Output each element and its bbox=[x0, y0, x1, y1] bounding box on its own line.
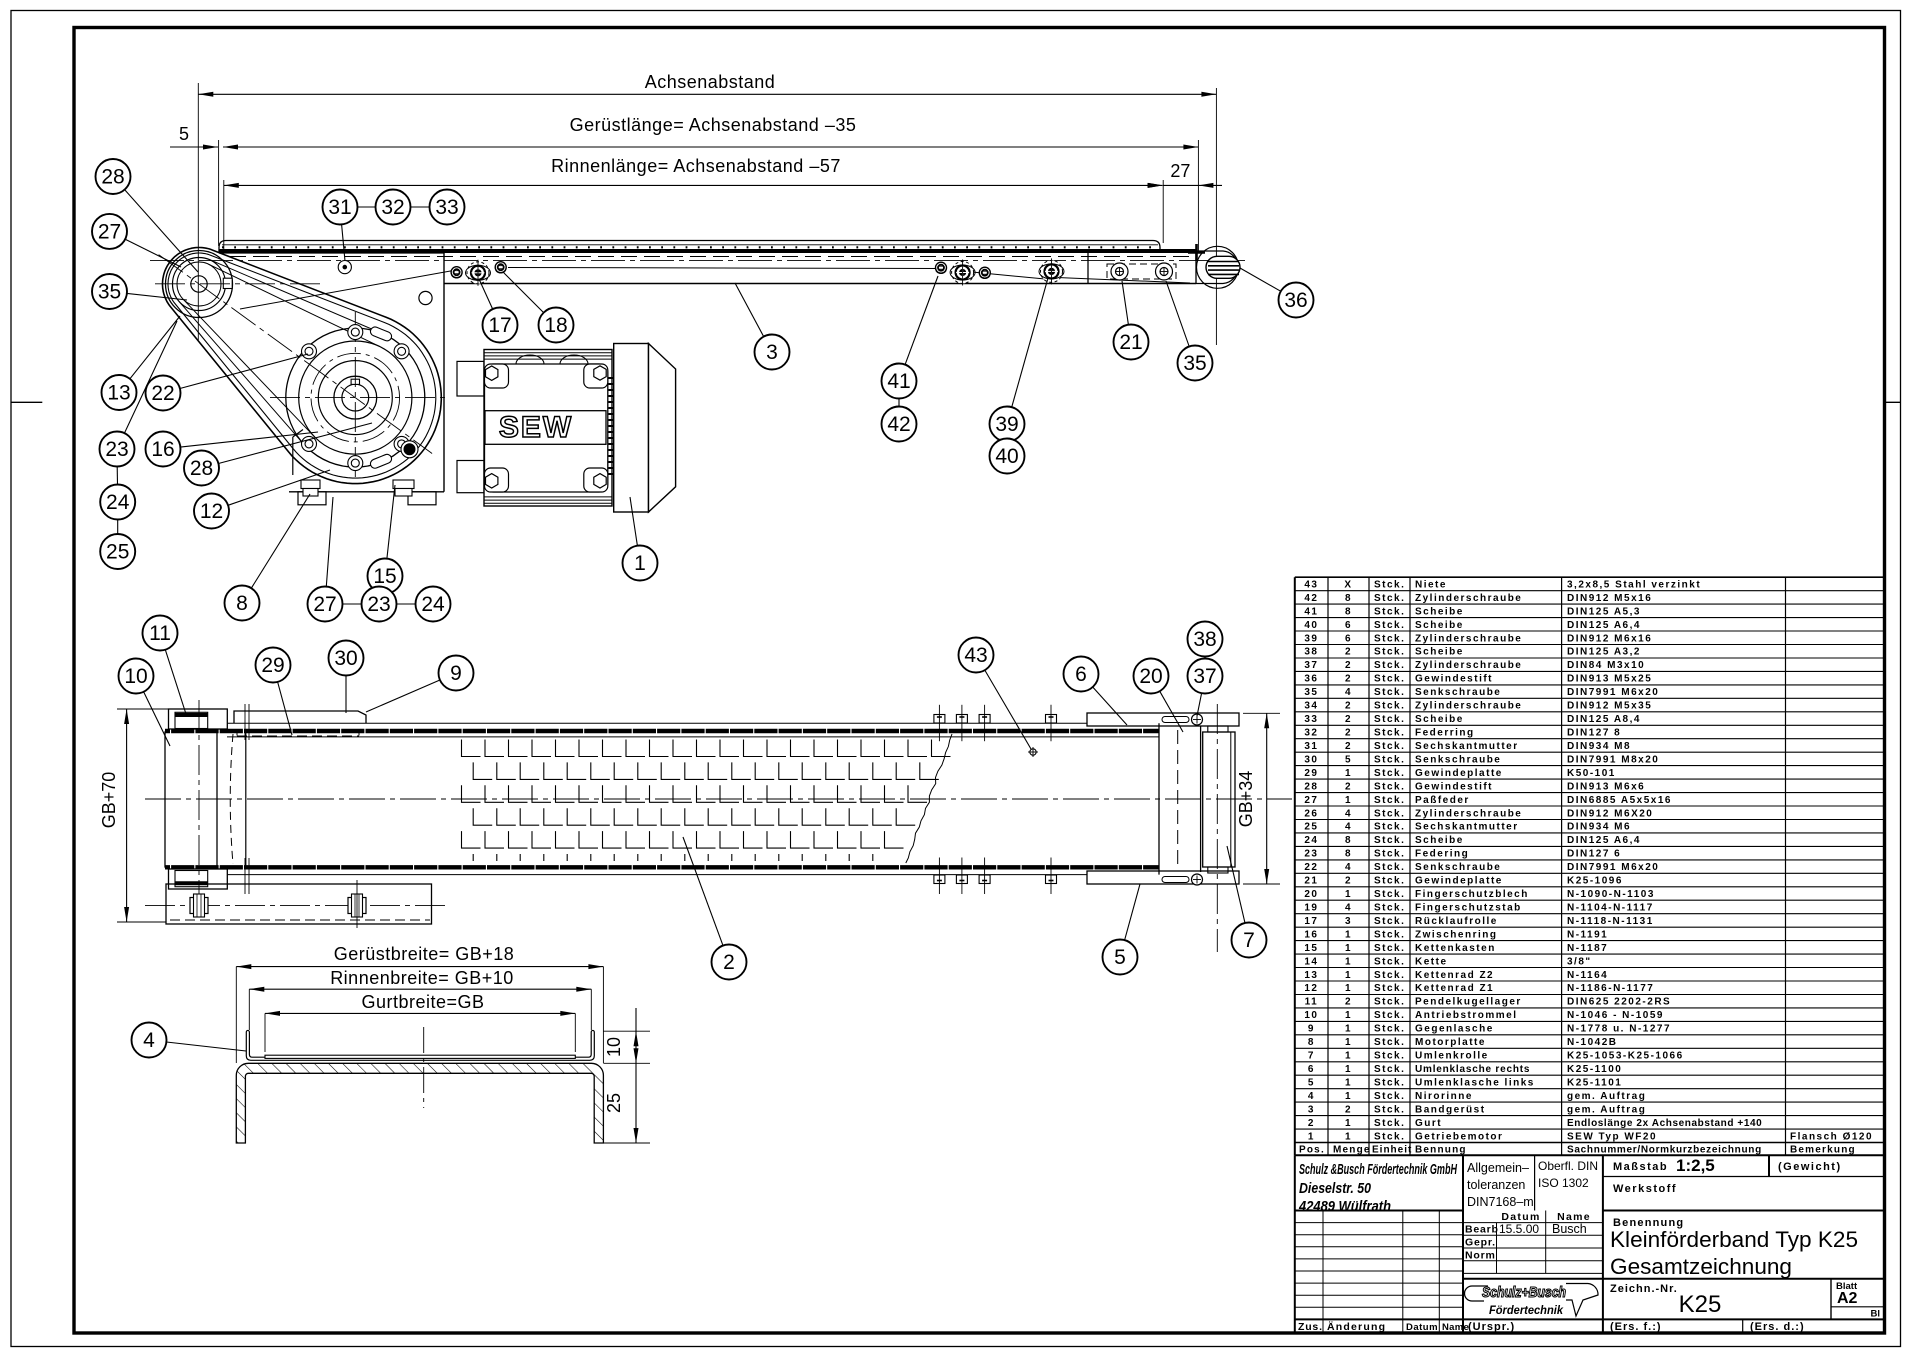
svg-text:8: 8 bbox=[1345, 835, 1352, 846]
svg-text:Scheibe: Scheibe bbox=[1415, 647, 1464, 658]
svg-text:Stck.: Stck. bbox=[1374, 997, 1405, 1008]
svg-text:28: 28 bbox=[190, 457, 213, 480]
svg-text:23: 23 bbox=[1304, 849, 1318, 860]
svg-text:Stck.: Stck. bbox=[1374, 822, 1405, 833]
svg-text:1: 1 bbox=[1345, 1078, 1352, 1089]
svg-text:DIN127 6: DIN127 6 bbox=[1567, 849, 1621, 860]
svg-text:30: 30 bbox=[1304, 754, 1318, 765]
svg-text:2: 2 bbox=[1345, 660, 1352, 671]
svg-text:Stck.: Stck. bbox=[1374, 1037, 1405, 1048]
svg-text:Stck.: Stck. bbox=[1374, 849, 1405, 860]
svg-text:DIN913 M6x6: DIN913 M6x6 bbox=[1567, 781, 1645, 792]
svg-text:Stck.: Stck. bbox=[1374, 1104, 1405, 1115]
svg-text:DIN84 M3x10: DIN84 M3x10 bbox=[1567, 660, 1645, 671]
svg-text:Stck.: Stck. bbox=[1374, 714, 1405, 725]
svg-text:Gegenlasche: Gegenlasche bbox=[1415, 1024, 1494, 1035]
svg-text:2: 2 bbox=[1345, 741, 1352, 752]
svg-text:Scheibe: Scheibe bbox=[1415, 835, 1464, 846]
svg-text:11: 11 bbox=[149, 622, 171, 645]
svg-text:21: 21 bbox=[1304, 876, 1318, 887]
svg-text:(Gewicht): (Gewicht) bbox=[1778, 1161, 1842, 1173]
svg-text:Senkschraube: Senkschraube bbox=[1415, 687, 1501, 698]
svg-text:Norm: Norm bbox=[1465, 1250, 1496, 1262]
svg-text:1: 1 bbox=[1345, 1037, 1352, 1048]
svg-text:1: 1 bbox=[1345, 1051, 1352, 1062]
svg-text:Getriebemotor: Getriebemotor bbox=[1415, 1131, 1503, 1142]
svg-text:25: 25 bbox=[106, 541, 129, 564]
svg-text:Stck.: Stck. bbox=[1374, 1078, 1405, 1089]
svg-text:Stck.: Stck. bbox=[1374, 579, 1405, 590]
svg-text:Rinnenbreite= GB+10: Rinnenbreite= GB+10 bbox=[330, 968, 514, 988]
svg-text:Zylinderschraube: Zylinderschraube bbox=[1415, 593, 1522, 604]
svg-text:20: 20 bbox=[1304, 889, 1318, 900]
svg-text:1: 1 bbox=[1345, 1118, 1352, 1129]
svg-text:33: 33 bbox=[1304, 714, 1318, 725]
svg-text:30: 30 bbox=[334, 647, 357, 670]
svg-text:2: 2 bbox=[1345, 674, 1352, 685]
svg-text:Stck.: Stck. bbox=[1374, 1131, 1405, 1142]
svg-text:Bemerkung: Bemerkung bbox=[1790, 1145, 1856, 1156]
svg-text:40: 40 bbox=[995, 445, 1018, 468]
svg-text:35: 35 bbox=[1304, 687, 1318, 698]
svg-text:Sechskantmutter: Sechskantmutter bbox=[1415, 822, 1519, 833]
svg-text:ISO 1302: ISO 1302 bbox=[1538, 1176, 1589, 1190]
svg-text:DIN913 M5x25: DIN913 M5x25 bbox=[1567, 674, 1652, 685]
svg-text:1: 1 bbox=[1345, 1024, 1352, 1035]
svg-text:Datum: Datum bbox=[1406, 1322, 1438, 1333]
svg-text:2: 2 bbox=[1345, 647, 1352, 658]
svg-text:(Urspr.): (Urspr.) bbox=[1468, 1321, 1515, 1333]
svg-text:Federing: Federing bbox=[1415, 849, 1469, 860]
svg-text:Gewindeplatte: Gewindeplatte bbox=[1415, 876, 1503, 887]
svg-text:DIN934 M8: DIN934 M8 bbox=[1567, 741, 1631, 752]
svg-text:32: 32 bbox=[381, 196, 404, 219]
svg-text:Sachnummer/Normkurzbezeichnung: Sachnummer/Normkurzbezeichnung bbox=[1567, 1145, 1762, 1156]
svg-text:35: 35 bbox=[98, 281, 121, 304]
svg-text:N-1191: N-1191 bbox=[1567, 929, 1608, 940]
svg-text:34: 34 bbox=[1304, 701, 1318, 712]
svg-text:Schulz &Busch Fördertechnik Gm: Schulz &Busch Fördertechnik GmbH bbox=[1299, 1162, 1457, 1178]
svg-text:5: 5 bbox=[1114, 946, 1126, 969]
svg-text:Senkschraube: Senkschraube bbox=[1415, 862, 1501, 873]
svg-text:Gepr.: Gepr. bbox=[1465, 1237, 1496, 1249]
svg-text:Oberfl. DIN: Oberfl. DIN bbox=[1538, 1159, 1598, 1173]
svg-text:X: X bbox=[1344, 579, 1352, 590]
svg-text:42: 42 bbox=[1304, 593, 1318, 604]
svg-text:1: 1 bbox=[1345, 983, 1352, 994]
svg-text:Achsenabstand: Achsenabstand bbox=[645, 72, 776, 92]
svg-text:1: 1 bbox=[1345, 1010, 1352, 1021]
svg-text:Zylinderschraube: Zylinderschraube bbox=[1415, 701, 1522, 712]
svg-text:31: 31 bbox=[1304, 741, 1318, 752]
svg-text:8: 8 bbox=[1345, 606, 1352, 617]
svg-text:24: 24 bbox=[1304, 835, 1318, 846]
svg-text:29: 29 bbox=[261, 654, 284, 677]
svg-text:1: 1 bbox=[1345, 970, 1352, 981]
svg-text:Stck.: Stck. bbox=[1374, 660, 1405, 671]
svg-text:Nirorinne: Nirorinne bbox=[1415, 1091, 1473, 1102]
svg-text:Rinnenlänge= Achsenabstand –57: Rinnenlänge= Achsenabstand –57 bbox=[551, 156, 841, 176]
svg-text:K25-1096: K25-1096 bbox=[1567, 876, 1623, 887]
svg-text:37: 37 bbox=[1193, 665, 1216, 688]
svg-text:43: 43 bbox=[1304, 579, 1318, 590]
svg-text:K25-1101: K25-1101 bbox=[1567, 1078, 1622, 1089]
svg-text:N-1187: N-1187 bbox=[1567, 943, 1608, 954]
svg-text:12: 12 bbox=[1304, 983, 1318, 994]
svg-text:DIN7991 M8x20: DIN7991 M8x20 bbox=[1567, 754, 1659, 765]
svg-text:14: 14 bbox=[1304, 956, 1318, 967]
svg-text:22: 22 bbox=[151, 382, 174, 405]
svg-text:33: 33 bbox=[435, 196, 458, 219]
svg-text:Scheibe: Scheibe bbox=[1415, 620, 1464, 631]
svg-text:Kette: Kette bbox=[1415, 956, 1448, 967]
svg-text:Gesamtzeichnung: Gesamtzeichnung bbox=[1610, 1254, 1792, 1279]
svg-text:1: 1 bbox=[1345, 1131, 1352, 1142]
svg-text:Stck.: Stck. bbox=[1374, 876, 1405, 887]
svg-text:5: 5 bbox=[1345, 754, 1352, 765]
svg-text:17: 17 bbox=[1304, 916, 1318, 927]
svg-text:Sechskantmutter: Sechskantmutter bbox=[1415, 741, 1519, 752]
svg-text:Stck.: Stck. bbox=[1374, 1064, 1405, 1075]
svg-text:6: 6 bbox=[1075, 663, 1087, 686]
svg-text:Stck.: Stck. bbox=[1374, 620, 1405, 631]
svg-text:N-1778 u. N-1277: N-1778 u. N-1277 bbox=[1567, 1024, 1671, 1035]
svg-text:Gurt: Gurt bbox=[1415, 1118, 1442, 1129]
svg-text:Werkstoff: Werkstoff bbox=[1613, 1183, 1677, 1195]
svg-text:8: 8 bbox=[1308, 1037, 1315, 1048]
svg-text:Gerüstlänge= Achsenabstand –35: Gerüstlänge= Achsenabstand –35 bbox=[570, 115, 857, 135]
svg-text:4: 4 bbox=[1345, 822, 1352, 833]
svg-text:38: 38 bbox=[1193, 628, 1216, 651]
svg-text:Stck.: Stck. bbox=[1374, 956, 1405, 967]
svg-text:32: 32 bbox=[1304, 728, 1318, 739]
svg-text:Stck.: Stck. bbox=[1374, 929, 1405, 940]
svg-text:23: 23 bbox=[105, 438, 128, 461]
svg-text:Fingerschutzstab: Fingerschutzstab bbox=[1415, 903, 1522, 914]
svg-text:Stck.: Stck. bbox=[1374, 741, 1405, 752]
svg-text:1:2,5: 1:2,5 bbox=[1676, 1156, 1715, 1175]
svg-text:16: 16 bbox=[1304, 929, 1318, 940]
svg-text:6: 6 bbox=[1345, 620, 1352, 631]
svg-text:Gerüstbreite= GB+18: Gerüstbreite= GB+18 bbox=[334, 944, 515, 964]
svg-text:38: 38 bbox=[1304, 647, 1318, 658]
svg-text:Senkschraube: Senkschraube bbox=[1415, 754, 1501, 765]
svg-text:Gewindeplatte: Gewindeplatte bbox=[1415, 768, 1503, 779]
svg-text:42: 42 bbox=[887, 413, 910, 436]
svg-text:Stck.: Stck. bbox=[1374, 687, 1405, 698]
svg-text:DIN912 M6X20: DIN912 M6X20 bbox=[1567, 808, 1653, 819]
svg-text:Umlenklasche rechts: Umlenklasche rechts bbox=[1415, 1064, 1530, 1075]
svg-text:Pos.: Pos. bbox=[1299, 1145, 1325, 1156]
svg-text:7: 7 bbox=[1243, 929, 1255, 952]
svg-text:Zylinderschraube: Zylinderschraube bbox=[1415, 808, 1522, 819]
svg-text:1: 1 bbox=[1345, 1091, 1352, 1102]
svg-text:Rücklaufrolle: Rücklaufrolle bbox=[1415, 916, 1498, 927]
svg-text:Scheibe: Scheibe bbox=[1415, 606, 1464, 617]
svg-text:Stck.: Stck. bbox=[1374, 1118, 1405, 1129]
svg-text:20: 20 bbox=[1139, 665, 1162, 688]
svg-text:26: 26 bbox=[1304, 808, 1318, 819]
svg-text:DIN7991 M6x20: DIN7991 M6x20 bbox=[1567, 862, 1659, 873]
svg-text:K50-101: K50-101 bbox=[1567, 768, 1616, 779]
svg-text:Kleinförderband Typ K25: Kleinförderband Typ K25 bbox=[1610, 1227, 1858, 1252]
svg-text:1: 1 bbox=[1345, 956, 1352, 967]
svg-text:Stck.: Stck. bbox=[1374, 728, 1405, 739]
svg-text:2: 2 bbox=[1345, 876, 1352, 887]
svg-text:11: 11 bbox=[1305, 997, 1319, 1008]
svg-text:1: 1 bbox=[1308, 1131, 1315, 1142]
svg-text:3/8": 3/8" bbox=[1567, 956, 1592, 967]
svg-text:13: 13 bbox=[107, 382, 130, 405]
svg-text:21: 21 bbox=[1119, 331, 1142, 354]
svg-text:Änderung: Änderung bbox=[1327, 1320, 1386, 1333]
svg-text:7: 7 bbox=[1308, 1051, 1315, 1062]
svg-text:27: 27 bbox=[313, 593, 336, 616]
svg-text:Zus.: Zus. bbox=[1298, 1321, 1323, 1333]
svg-text:4: 4 bbox=[1345, 687, 1352, 698]
svg-text:Pendelkugellager: Pendelkugellager bbox=[1415, 997, 1522, 1008]
svg-text:2: 2 bbox=[1345, 714, 1352, 725]
svg-text:10: 10 bbox=[604, 1037, 624, 1057]
svg-text:DIN912 M6x16: DIN912 M6x16 bbox=[1567, 633, 1652, 644]
svg-text:41: 41 bbox=[887, 370, 910, 393]
svg-text:27: 27 bbox=[98, 220, 121, 243]
svg-text:SEW Typ WF20: SEW Typ WF20 bbox=[1567, 1131, 1657, 1142]
svg-text:Motorplatte: Motorplatte bbox=[1415, 1037, 1486, 1048]
svg-text:Stck.: Stck. bbox=[1374, 781, 1405, 792]
svg-text:Stck.: Stck. bbox=[1374, 606, 1405, 617]
svg-text:Stck.: Stck. bbox=[1374, 916, 1405, 927]
svg-text:Fingerschutzblech: Fingerschutzblech bbox=[1415, 889, 1529, 900]
svg-text:N-1186-N-1177: N-1186-N-1177 bbox=[1567, 983, 1654, 994]
svg-text:Umlenkrolle: Umlenkrolle bbox=[1415, 1051, 1489, 1062]
svg-text:DIN7168–m: DIN7168–m bbox=[1467, 1195, 1534, 1209]
svg-text:Kettenkasten: Kettenkasten bbox=[1415, 943, 1496, 954]
svg-text:10: 10 bbox=[1304, 1010, 1318, 1021]
svg-text:Stck.: Stck. bbox=[1374, 593, 1405, 604]
svg-text:5: 5 bbox=[179, 124, 189, 144]
svg-text:DIN6885 A5x5x16: DIN6885 A5x5x16 bbox=[1567, 795, 1672, 806]
svg-text:6: 6 bbox=[1308, 1064, 1315, 1075]
svg-text:K25: K25 bbox=[1679, 1291, 1722, 1318]
svg-text:Gewindestift: Gewindestift bbox=[1415, 674, 1493, 685]
svg-text:K25-1100: K25-1100 bbox=[1567, 1064, 1622, 1075]
svg-text:Gurtbreite=GB: Gurtbreite=GB bbox=[361, 992, 484, 1012]
svg-text:Zylinderschraube: Zylinderschraube bbox=[1415, 633, 1522, 644]
svg-text:Menge: Menge bbox=[1333, 1145, 1371, 1156]
svg-text:5: 5 bbox=[1308, 1078, 1315, 1089]
svg-text:(Ers. f.:): (Ers. f.:) bbox=[1610, 1321, 1662, 1333]
svg-text:Einheit: Einheit bbox=[1372, 1145, 1412, 1156]
svg-text:19: 19 bbox=[1304, 903, 1318, 914]
svg-text:Stck.: Stck. bbox=[1374, 1010, 1405, 1021]
svg-text:24: 24 bbox=[421, 593, 445, 616]
svg-text:Allgemein–: Allgemein– bbox=[1467, 1161, 1529, 1175]
svg-text:9: 9 bbox=[1308, 1024, 1315, 1035]
svg-text:15: 15 bbox=[373, 565, 396, 588]
svg-text:Stck.: Stck. bbox=[1374, 633, 1405, 644]
svg-text:Maßstab: Maßstab bbox=[1613, 1161, 1668, 1173]
svg-text:42489 Wülfrath: 42489 Wülfrath bbox=[1298, 1199, 1391, 1215]
svg-text:3: 3 bbox=[1308, 1104, 1315, 1115]
svg-text:2: 2 bbox=[1345, 781, 1352, 792]
svg-text:3: 3 bbox=[1345, 916, 1352, 927]
svg-text:DIN934 M6: DIN934 M6 bbox=[1567, 822, 1631, 833]
svg-text:Paßfeder: Paßfeder bbox=[1415, 795, 1470, 806]
svg-text:22: 22 bbox=[1304, 862, 1318, 873]
svg-text:A2: A2 bbox=[1837, 1290, 1858, 1307]
svg-text:DIN125 A3,2: DIN125 A3,2 bbox=[1567, 647, 1641, 658]
svg-text:2: 2 bbox=[1345, 997, 1352, 1008]
svg-text:3,2x8,5 Stahl verzinkt: 3,2x8,5 Stahl verzinkt bbox=[1567, 579, 1701, 590]
svg-text:Stck.: Stck. bbox=[1374, 808, 1405, 819]
svg-text:K25-1053-K25-1066: K25-1053-K25-1066 bbox=[1567, 1051, 1684, 1062]
svg-text:3: 3 bbox=[766, 341, 778, 364]
svg-text:2: 2 bbox=[1308, 1118, 1315, 1129]
svg-text:Name: Name bbox=[1442, 1322, 1469, 1333]
svg-text:Dieselstr. 50: Dieselstr. 50 bbox=[1299, 1181, 1371, 1197]
svg-text:4: 4 bbox=[1345, 808, 1352, 819]
svg-text:1: 1 bbox=[1345, 889, 1352, 900]
svg-text:27: 27 bbox=[1170, 161, 1190, 181]
svg-text:15: 15 bbox=[1304, 943, 1318, 954]
svg-text:2: 2 bbox=[1345, 701, 1352, 712]
svg-text:15.5.00: 15.5.00 bbox=[1499, 1222, 1539, 1236]
svg-text:28: 28 bbox=[101, 166, 124, 189]
svg-text:Bl: Bl bbox=[1871, 1309, 1881, 1320]
svg-text:DIN125 A8,4: DIN125 A8,4 bbox=[1567, 714, 1641, 725]
svg-text:DIN125 A6,4: DIN125 A6,4 bbox=[1567, 835, 1641, 846]
svg-text:Stck.: Stck. bbox=[1374, 701, 1405, 712]
svg-text:1: 1 bbox=[1345, 795, 1352, 806]
svg-text:10: 10 bbox=[124, 665, 147, 688]
svg-text:36: 36 bbox=[1304, 674, 1318, 685]
svg-text:2: 2 bbox=[723, 951, 735, 974]
svg-text:Kettenrad Z1: Kettenrad Z1 bbox=[1415, 983, 1494, 994]
svg-text:1: 1 bbox=[1345, 929, 1352, 940]
svg-text:Stck.: Stck. bbox=[1374, 835, 1405, 846]
svg-text:8: 8 bbox=[236, 592, 248, 615]
svg-text:Bearb: Bearb bbox=[1465, 1224, 1499, 1236]
svg-text:2: 2 bbox=[1345, 728, 1352, 739]
svg-text:N-1046 - N-1059: N-1046 - N-1059 bbox=[1567, 1010, 1664, 1021]
svg-text:gem. Auftrag: gem. Auftrag bbox=[1567, 1091, 1646, 1102]
svg-text:18: 18 bbox=[544, 314, 567, 337]
svg-text:Fördertechnik: Fördertechnik bbox=[1489, 1305, 1564, 1317]
svg-text:DIN125 A6,4: DIN125 A6,4 bbox=[1567, 620, 1641, 631]
svg-text:N-1104-N-1117: N-1104-N-1117 bbox=[1567, 903, 1654, 914]
svg-text:31: 31 bbox=[328, 196, 351, 219]
svg-text:24: 24 bbox=[106, 491, 130, 514]
svg-text:Stck.: Stck. bbox=[1374, 768, 1405, 779]
svg-text:Bandgerüst: Bandgerüst bbox=[1415, 1104, 1486, 1115]
svg-text:4: 4 bbox=[1308, 1091, 1315, 1102]
svg-text:Zwischenring: Zwischenring bbox=[1415, 929, 1497, 940]
svg-text:(Ers. d.:): (Ers. d.:) bbox=[1750, 1321, 1805, 1333]
svg-text:37: 37 bbox=[1304, 660, 1318, 671]
svg-text:23: 23 bbox=[367, 593, 390, 616]
svg-text:Stck.: Stck. bbox=[1374, 1051, 1405, 1062]
svg-text:8: 8 bbox=[1345, 593, 1352, 604]
svg-text:16: 16 bbox=[151, 438, 174, 461]
svg-text:Stck.: Stck. bbox=[1374, 1091, 1405, 1102]
svg-text:4: 4 bbox=[143, 1029, 155, 1052]
svg-text:toleranzen: toleranzen bbox=[1467, 1178, 1525, 1192]
svg-text:13: 13 bbox=[1304, 970, 1318, 981]
svg-text:1: 1 bbox=[1345, 943, 1352, 954]
svg-text:Stck.: Stck. bbox=[1374, 903, 1405, 914]
svg-text:gem. Auftrag: gem. Auftrag bbox=[1567, 1104, 1646, 1115]
svg-text:Niete: Niete bbox=[1415, 579, 1447, 590]
svg-text:Antriebstrommel: Antriebstrommel bbox=[1415, 1010, 1518, 1021]
svg-text:DIN625 2202-2RS: DIN625 2202-2RS bbox=[1567, 997, 1671, 1008]
svg-text:N-1118-N-1131: N-1118-N-1131 bbox=[1567, 916, 1654, 927]
svg-text:Zylinderschraube: Zylinderschraube bbox=[1415, 660, 1522, 671]
svg-text:8: 8 bbox=[1345, 849, 1352, 860]
svg-text:17: 17 bbox=[488, 314, 511, 337]
svg-text:SEW: SEW bbox=[499, 411, 573, 444]
svg-text:41: 41 bbox=[1304, 606, 1318, 617]
svg-text:4: 4 bbox=[1345, 862, 1352, 873]
svg-text:DIN912 M5x16: DIN912 M5x16 bbox=[1567, 593, 1652, 604]
svg-text:6: 6 bbox=[1345, 633, 1352, 644]
svg-text:28: 28 bbox=[1304, 781, 1318, 792]
svg-text:Stck.: Stck. bbox=[1374, 889, 1405, 900]
svg-text:Flansch Ø120: Flansch Ø120 bbox=[1790, 1131, 1873, 1142]
svg-text:39: 39 bbox=[995, 413, 1018, 436]
svg-text:1: 1 bbox=[1345, 768, 1352, 779]
svg-text:DIN125 A5,3: DIN125 A5,3 bbox=[1567, 606, 1641, 617]
svg-text:43: 43 bbox=[964, 644, 987, 667]
svg-text:Stck.: Stck. bbox=[1374, 943, 1405, 954]
svg-text:Stck.: Stck. bbox=[1374, 970, 1405, 981]
svg-text:29: 29 bbox=[1304, 768, 1318, 779]
svg-text:N-1164: N-1164 bbox=[1567, 970, 1608, 981]
svg-text:39: 39 bbox=[1304, 633, 1318, 644]
svg-text:Schulz+Busch: Schulz+Busch bbox=[1482, 1285, 1566, 1301]
svg-text:12: 12 bbox=[200, 500, 223, 523]
svg-text:Endloslänge 2x Achsenabstand +: Endloslänge 2x Achsenabstand +140 bbox=[1567, 1118, 1762, 1129]
svg-text:GB+70: GB+70 bbox=[99, 772, 119, 829]
svg-text:1: 1 bbox=[1345, 1064, 1352, 1075]
svg-text:Kettenrad Z2: Kettenrad Z2 bbox=[1415, 970, 1494, 981]
svg-text:Stck.: Stck. bbox=[1374, 674, 1405, 685]
svg-text:9: 9 bbox=[450, 662, 462, 685]
svg-text:Federring: Federring bbox=[1415, 728, 1475, 739]
svg-text:25: 25 bbox=[604, 1093, 624, 1113]
svg-text:Busch: Busch bbox=[1552, 1222, 1587, 1236]
svg-text:35: 35 bbox=[1183, 352, 1206, 375]
svg-text:DIN127 8: DIN127 8 bbox=[1567, 728, 1621, 739]
svg-text:Scheibe: Scheibe bbox=[1415, 714, 1464, 725]
svg-text:DIN912 M5x35: DIN912 M5x35 bbox=[1567, 701, 1652, 712]
svg-text:Stck.: Stck. bbox=[1374, 862, 1405, 873]
svg-text:Zeichn.-Nr.: Zeichn.-Nr. bbox=[1610, 1283, 1678, 1295]
svg-text:27: 27 bbox=[1304, 795, 1318, 806]
svg-text:40: 40 bbox=[1304, 620, 1318, 631]
svg-text:Stck.: Stck. bbox=[1374, 647, 1405, 658]
svg-text:Bennung: Bennung bbox=[1415, 1145, 1467, 1156]
svg-text:36: 36 bbox=[1284, 289, 1307, 312]
svg-text:Stck.: Stck. bbox=[1374, 795, 1405, 806]
svg-text:1: 1 bbox=[634, 552, 646, 575]
svg-text:N-1042B: N-1042B bbox=[1567, 1037, 1618, 1048]
svg-text:25: 25 bbox=[1304, 822, 1318, 833]
svg-text:Umlenklasche links: Umlenklasche links bbox=[1415, 1078, 1535, 1089]
svg-text:2: 2 bbox=[1345, 1104, 1352, 1115]
svg-text:Gewindestift: Gewindestift bbox=[1415, 781, 1493, 792]
svg-text:4: 4 bbox=[1345, 903, 1352, 914]
